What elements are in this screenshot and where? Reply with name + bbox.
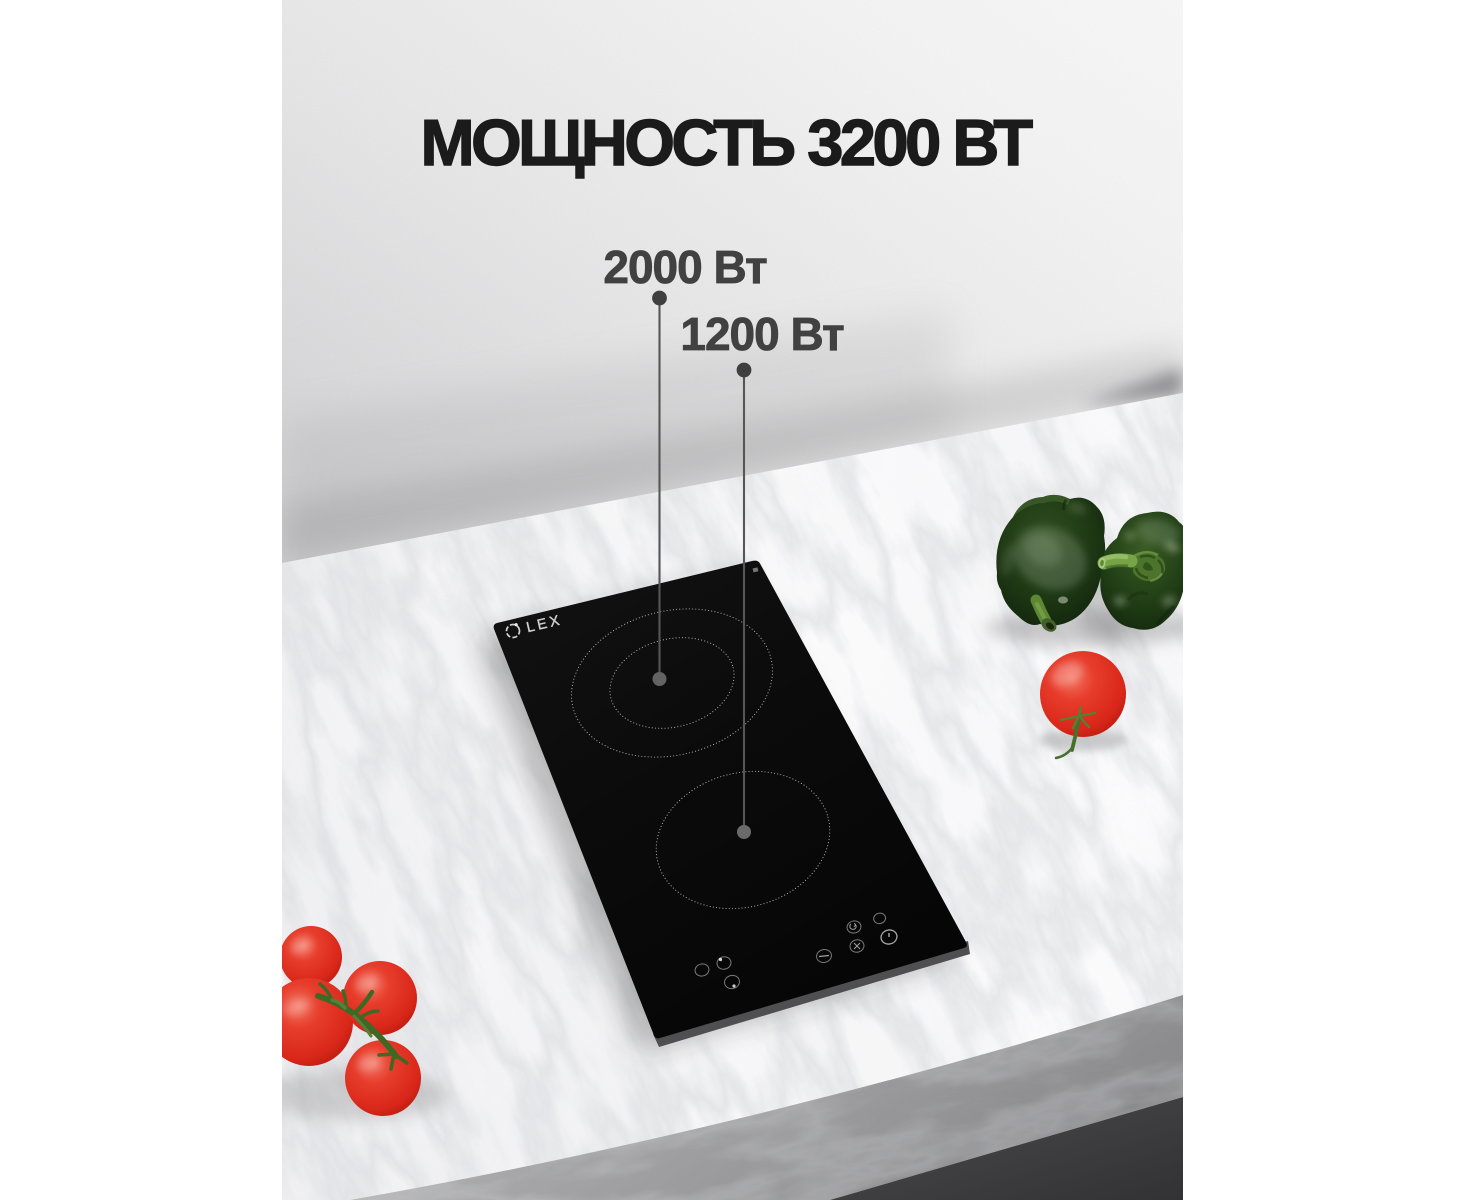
svg-text:МОЩНОСТЬ 3200 ВТ: МОЩНОСТЬ 3200 ВТ [420, 106, 1032, 179]
svg-text:1200 Вт: 1200 Вт [680, 308, 844, 360]
svg-text:2000 Вт: 2000 Вт [603, 241, 767, 293]
